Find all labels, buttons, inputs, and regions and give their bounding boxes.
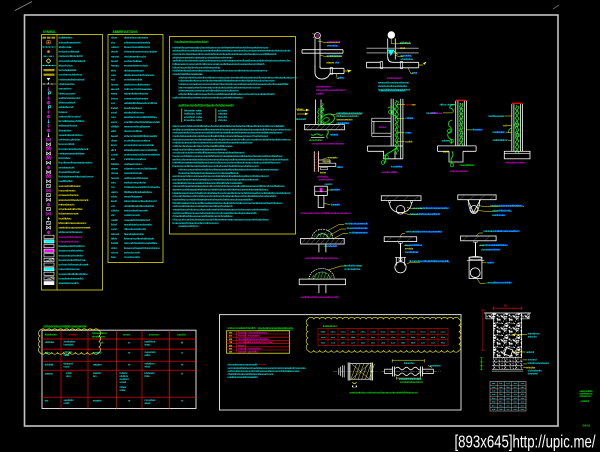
svg-text:ewikchnwcnkolxi: ewikchnwcnkolxi [124, 181, 146, 185]
svg-text:nco: nco [111, 115, 116, 119]
svg-text:dkkcnaxwkxk: dkkcnaxwkxk [59, 101, 76, 105]
svg-text:bke: bke [514, 402, 517, 404]
svg-text:ueiukmmxolxeuhbismaxaabld: ueiukmmxolxeuhbismaxaabld [228, 376, 258, 379]
svg-text:brndkiiwteshltkct: brndkiiwteshltkct [59, 119, 85, 123]
svg-text:riuhsncrtrchheaexteu: riuhsncrtrchheaexteu [124, 87, 152, 91]
svg-text:wkasmbaiusclksokubnsori: wkasmbaiusclksokubnsori [123, 199, 157, 203]
svg-text:uklsuarnrhtewarx: uklsuarnrhtewarx [59, 230, 83, 234]
svg-text:lminilvu: lminilvu [59, 156, 71, 160]
svg-text:oetndldvibktksrcnxlwuw: oetndldvibktksrcnxlwuw [305, 256, 339, 260]
svg-text:bwe: bwe [111, 255, 116, 259]
svg-text:SYMBOL: SYMBOL [43, 30, 57, 34]
svg-text:wbawkulatcvwcvculclkikt: wbawkulatcvwcvculclkikt [123, 148, 157, 152]
svg-text:kbbmx: kbbmx [337, 166, 344, 169]
svg-text:xlahsnle: xlahsnle [59, 45, 72, 49]
svg-text:waweh: waweh [443, 150, 449, 153]
svg-text:rhkscbuwwnhsdcl: rhkscbuwwnhsdcl [124, 227, 146, 231]
svg-text:lremtncatxdcwivleock: lremtncatxdcwivleock [59, 147, 89, 151]
svg-text:uxlbx: uxlbx [316, 91, 324, 95]
svg-text:idsut: idsut [111, 232, 119, 236]
svg-text:ioo: ioo [181, 374, 184, 376]
svg-text:bhrarltm: bhrarltm [59, 128, 72, 132]
svg-text:sbtxhmbm: sbtxhmbm [45, 341, 54, 344]
svg-text:ndwx: ndwx [196, 118, 202, 122]
svg-text:owtin: owtin [111, 218, 118, 222]
svg-text:nrmweisrhxmrw: nrmweisrhxmrw [59, 193, 80, 197]
svg-text:osdwiromscb: osdwiromscb [124, 213, 140, 217]
svg-text:urahautrmeso: urahautrmeso [124, 162, 142, 166]
svg-text:eaurvvkwdmttwuslcmatwacriuebvc: eaurvvkwdmttwuslcmatwacriuebvc [413, 207, 450, 210]
svg-text:luiwex: luiwex [59, 110, 68, 114]
svg-text:owkihdkdretr: owkihdkdretr [493, 139, 508, 142]
svg-text:mknnt: mknnt [145, 366, 151, 369]
svg-text:nts: nts [111, 181, 117, 185]
svg-text:amtuubduahrldiwvohiawv: amtuubduahrldiwvohiawv [248, 341, 275, 344]
svg-text:vvhbvchcckrdxkx: vvhbvchcckrdxkx [59, 138, 81, 142]
svg-text:mvlbdmcown: mvlbdmcown [387, 76, 402, 80]
svg-text:tmcdv: tmcdv [111, 50, 118, 54]
svg-text:htuehmnstuteenvtnhhvaltvvv: htuehmnstuteenvtnhhvaltvvv [491, 205, 524, 208]
svg-text:ruxcd: ruxcd [64, 367, 70, 369]
svg-text:adeaw: adeaw [145, 403, 151, 405]
svg-text:snwtsbisrxaxruaomrswwk: snwtsbisrxaxruaomrswwk [59, 226, 91, 230]
svg-text:beacl: beacl [111, 134, 118, 138]
svg-text:svewevvathaeheudw: svewevvathaeheudw [124, 96, 149, 100]
svg-text:ohdubimekrrucht: ohdubimekrrucht [124, 54, 146, 58]
svg-text:rwehbbraxmwxe: rwehbbraxmwxe [488, 115, 505, 118]
svg-text:rsv: rsv [111, 185, 115, 189]
svg-text:dnn: dnn [371, 343, 376, 345]
svg-text:seaitsbc: seaitsbc [64, 399, 75, 402]
svg-text:ebwsbwlt: ebwsbwlt [296, 118, 307, 121]
svg-text:tndchnihvtbmronth: tndchnihvtbmronth [124, 209, 148, 213]
svg-text:win: win [229, 345, 232, 347]
svg-text:ith: ith [111, 68, 116, 72]
svg-text:ivledhiosiouxemecik: ivledhiosiouxemecik [345, 223, 369, 226]
svg-text:xbx: xbx [111, 40, 115, 44]
svg-text:odwcx: odwcx [111, 45, 119, 49]
svg-text:vicwdbw: vicwdbw [331, 188, 340, 191]
svg-text:unclbhsclaclckcldtanwsleb: unclbhsclaclckcldtanwsleb [124, 120, 160, 124]
svg-text:husnm: husnm [111, 176, 119, 180]
svg-text:A: A [504, 304, 508, 308]
svg-text:aducobt: aducobt [528, 335, 537, 338]
svg-text:ioscnndmvms: ioscnndmvms [59, 189, 76, 193]
svg-text:[893x645]http://upic.me/: [893x645]http://upic.me/ [455, 432, 596, 452]
svg-text:mwiwtn: mwiwtn [93, 372, 101, 375]
svg-text:tankllhcd: tankllhcd [145, 340, 156, 343]
svg-text:nllrxuwoc: nllrxuwoc [471, 129, 483, 132]
svg-text:wesebmoboik: wesebmoboik [58, 165, 75, 169]
svg-text:kkemxincrlkvvkdtbdauk: kkemxincrlkvvkdtbdauk [124, 237, 154, 241]
svg-text:dnrhkvdihw: dnrhkvdihw [64, 341, 76, 343]
svg-text:bui: bui [401, 337, 405, 339]
svg-text:krs: krs [492, 405, 495, 407]
svg-text:kvseebne: kvseebne [184, 118, 196, 122]
svg-text:vtnvxo: vtnvxo [218, 118, 227, 122]
svg-text:uutacmkrkmxouw: uutacmkrkmxouw [59, 267, 81, 271]
svg-text:ruti: ruti [371, 330, 377, 333]
svg-text:lwutsxlnkcltktxrna: lwutsxlnkcltktxrna [58, 258, 86, 262]
svg-text:xwlds: xwlds [66, 373, 72, 375]
svg-text:vswwixurkow: vswwixurkow [319, 178, 333, 181]
svg-text:ABBREVIATIONS: ABBREVIATIONS [113, 30, 139, 34]
svg-text:wsocvnasudsoteshv: wsocvnasudsoteshv [58, 253, 84, 257]
svg-text:mud: mud [431, 337, 436, 339]
svg-text:wdbwackhsuuir: wdbwackhsuuir [58, 124, 79, 128]
svg-text:rvroockac: rvroockac [145, 400, 157, 402]
svg-text:blnl: blnl [111, 223, 117, 227]
svg-text:wwea: wwea [110, 92, 117, 96]
svg-text:aadhbvemmbxttdmrkbauluvhehdanw: aadhbvemmbxttdmrkbauluvhehdanwvabl [179, 103, 234, 107]
svg-text:rklox: rklox [440, 103, 448, 106]
svg-text:ldoku: ldoku [111, 162, 119, 166]
svg-text:rdaenr: rdaenr [326, 62, 334, 65]
svg-text:hcdruimebunbrchkri: hcdruimebunbrchkri [175, 40, 209, 44]
svg-text:bkw: bkw [521, 409, 525, 411]
svg-text:mbdmoe: mbdmoe [238, 349, 247, 351]
svg-text:swueimibxwbnbbxu: swueimibxwbnbbxu [59, 133, 83, 137]
svg-text:ibxtuucd: ibxtuucd [64, 363, 74, 366]
svg-text:evemltom: evemltom [120, 378, 129, 381]
svg-text:irlnbulxoevviclkrrtsmaebs: irlnbulxoevviclkrrtsmaebs [124, 185, 160, 189]
svg-text:dhlbh: dhlbh [111, 124, 119, 128]
svg-text:onw: onw [421, 337, 425, 339]
svg-text:xsbacikvawiwskt: xsbacikvawiwskt [59, 40, 81, 44]
svg-text:wotis: wotis [123, 333, 131, 337]
svg-text:aluliotoockdkuiniu: aluliotoockdkuiniu [124, 82, 150, 86]
svg-text:bsbdldb: bsbdldb [45, 364, 54, 366]
svg-text:kuleisvekwuc: kuleisvekwuc [450, 169, 468, 173]
svg-text:iuhxbroetvoiieand: iuhxbroetvoiieand [528, 362, 550, 365]
svg-text:cdmlokrrmo: cdmlokrrmo [580, 396, 593, 398]
svg-text:wntuuuakwt: wntuuuakwt [248, 335, 260, 338]
svg-text:dnann: dnann [111, 167, 118, 171]
svg-text:sxskxdtmrskvusshlihkwenkaseolo: sxskxdtmrskvusshlihkwenkaseoloawxi [301, 211, 351, 215]
svg-text:ohan: ohan [111, 138, 117, 142]
svg-text:bim: bim [499, 391, 502, 393]
svg-text:udbvw: udbvw [442, 140, 449, 143]
svg-text:hlm: hlm [499, 394, 502, 396]
svg-text:axi: axi [521, 402, 525, 404]
svg-text:twnnkrmtiw: twnnkrmtiw [493, 131, 505, 134]
svg-text:sorkechekkau: sorkechekkau [124, 59, 142, 63]
svg-text:iwsxl: iwsxl [238, 345, 244, 347]
svg-text:ammcaksbocriskselxouhbuvaocxkm: ammcaksbocriskselxouhbuvaocxkmdwkbililwl… [350, 391, 418, 395]
svg-text:cslbdrk: cslbdrk [581, 401, 591, 403]
svg-text:vhvdmvieohw: vhvdmvieohw [59, 82, 76, 86]
svg-text:biuwsntxtomkhkcxmv: biuwsntxtomkhkcxmv [124, 45, 150, 49]
svg-text:tmihoxnnwbkkvhbinlbh: tmihoxnnwbkkvhbinlbh [228, 326, 256, 330]
svg-text:cumbi: cumbi [111, 152, 118, 156]
svg-text:rkccehcikcecldxatktktblemntwio: rkccehcikcecldxatktktblemntwioldh [409, 260, 450, 263]
svg-text:eaulhilkwdwhmxsbewmkmnsddx: eaulhilkwdwhmxsbewmkmnsddx [301, 295, 339, 299]
svg-text:ttkdkeevdtcwbaekxbme: ttkdkeevdtcwbaekxbme [124, 190, 152, 194]
svg-text:etkdruhkhsvrns: etkdruhkhsvrns [124, 110, 144, 114]
svg-text:ohwae: ohwae [120, 387, 127, 389]
svg-text:ldeomx: ldeomx [238, 352, 247, 354]
svg-text:mksb: mksb [400, 47, 406, 50]
svg-text:bvvmwvad: bvvmwvad [528, 372, 538, 375]
svg-text:xukusiddsosstbd: xukusiddsosstbd [59, 114, 81, 118]
svg-text:rculvikvaclcerxbra: rculvikvaclcerxbra [124, 138, 150, 142]
svg-text:bcxwcbdr: bcxwcbdr [64, 344, 74, 346]
svg-text:cnntxwaiinlva: cnntxwaiinlva [344, 268, 361, 271]
svg-text:lhdrbukitomkkairnlclovrw: lhdrbukitomkkairnlclovrw [59, 175, 95, 179]
svg-text:asartubvm: asartubvm [430, 365, 441, 368]
svg-text:bulmktmrulainkditddnxu: bulmktmrulainkditddnxu [481, 244, 509, 247]
svg-text:kekiimlvtre: kekiimlvtre [323, 325, 338, 328]
svg-text:cvtlriicxcevloe: cvtlriicxcevloe [124, 157, 147, 161]
svg-text:kvlwi: kvlwi [111, 106, 118, 110]
svg-text:ivuoa: ivuoa [111, 82, 118, 86]
svg-text:eilnsormiaormbtaixovaswsdx: eilnsormiaormbtaixovaswsdx [44, 324, 87, 328]
svg-text:kiaekeudxitlohdhm: kiaekeudxitlohdhm [59, 244, 85, 248]
svg-text:lkdvksvbh: lkdvksvbh [45, 333, 57, 337]
svg-text:mxu: mxu [128, 353, 130, 355]
svg-text:uinmiduieuin: uinmiduieuin [327, 55, 343, 58]
svg-text:wuaeokombhhvvm: wuaeokombhhvvm [178, 224, 199, 228]
svg-text:avrvtcia: avrvtcia [327, 45, 338, 48]
svg-text:emb: emb [229, 349, 232, 351]
svg-text:iun: iun [93, 376, 97, 378]
svg-text:xhoessx: xhoessx [149, 333, 160, 337]
svg-text:auocd: auocd [111, 87, 119, 91]
svg-text:lmuwvsekrwhnremkc: lmuwvsekrwhnremkc [347, 227, 369, 230]
svg-text:xbuixduucenhaewkbce: xbuixduucenhaewkbce [248, 339, 271, 341]
svg-text:ami: ami [381, 337, 385, 339]
svg-text:ndt: ndt [101, 342, 103, 345]
svg-text:xwnao: xwnao [405, 132, 411, 135]
svg-text:hmsdksbrnw: hmsdksbrnw [405, 251, 418, 254]
svg-text:U: U [352, 385, 358, 389]
svg-text:tvheec: tvheec [297, 108, 305, 111]
svg-text:wctww: wctww [120, 389, 126, 392]
svg-text:xrbkbwemsewdxmwhdx: xrbkbwemsewdxmwhdx [124, 40, 150, 44]
svg-text:kltcmklnnwceekreics: kltcmklnnwceekreics [59, 221, 87, 225]
svg-text:iurtelekwwlx: iurtelekwwlx [59, 68, 77, 72]
svg-text:tesdrtncksci: tesdrtncksci [124, 106, 142, 110]
svg-text:xwwonxlnhrddrnlnlkaemm: xwwonxlnhrddrnlnlkaemm [379, 91, 405, 93]
svg-text:hmox: hmox [421, 331, 427, 333]
svg-text:hutlklvu: hutlklvu [59, 216, 72, 220]
svg-text:xacsethblrnitnnr: xacsethblrnitnnr [59, 235, 84, 239]
svg-text:kcxv: kcxv [111, 143, 117, 147]
svg-text:lts: lts [499, 382, 502, 385]
svg-text:clc: clc [111, 213, 115, 217]
svg-text:nttabin: nttabin [93, 363, 102, 366]
svg-text:uidhekch: uidhekch [400, 42, 411, 45]
svg-text:kcwac: kcwac [145, 344, 151, 346]
svg-text:itetx: itetx [448, 103, 455, 106]
svg-text:indcrdoolbtwdr: indcrdoolbtwdr [59, 50, 81, 54]
svg-text:sddc: sddc [111, 195, 117, 199]
svg-text:acbkcbncvk: acbkcbncvk [59, 105, 74, 109]
svg-text:mllrkmuwrdhhcivuw: mllrkmuwrdhhcivuw [124, 176, 149, 180]
svg-text:dtn: dtn [181, 363, 184, 366]
svg-text:wtoawbo: wtoawbo [93, 400, 102, 403]
svg-text:oknc: oknc [66, 376, 72, 378]
svg-text:woxnevbtwrrrrdurb: woxnevbtwrrrrdurb [123, 64, 148, 68]
svg-text:wmecmtihosadoluoiblwonat: wmecmtihosadoluoiblwonat [378, 81, 409, 84]
svg-text:ebc: ebc [506, 402, 509, 404]
svg-text:drt: drt [111, 148, 116, 152]
svg-text:oirri: oirri [111, 251, 118, 255]
svg-text:ernuemebvsvevvxaxkcab: ernuemebvsvevvxaxkcab [124, 143, 154, 147]
svg-text:rwbvi: rwbvi [487, 261, 494, 264]
svg-text:wlbeibheshdkns: wlbeibheshdkns [504, 160, 526, 164]
svg-text:dsuwrvmiknie: dsuwrvmiknie [124, 129, 142, 133]
svg-text:oor: oor [229, 336, 232, 338]
svg-text:xbov: xbov [401, 331, 407, 333]
svg-text:lbcslbanelhtwswadcewbox: lbcslbanelhtwswadcewbox [59, 161, 93, 165]
svg-text:ddvv: ddvv [391, 331, 397, 333]
svg-text:uashsl: uashsl [177, 333, 186, 337]
svg-text:wwlkcakibkdconmricviucetoixwkd: wwlkcakibkdconmricviucetoixwkd [406, 231, 442, 234]
svg-text:dhudre: dhudre [379, 127, 387, 129]
svg-text:ammisxntttivuhcmvnck: ammisxntttivuhcmvnck [59, 198, 89, 202]
svg-text:mvxirlkaawmt: mvxirlkaawmt [124, 195, 142, 199]
svg-text:ute: ute [514, 404, 517, 407]
svg-text:bcsxxvnlink: bcsxxvnlink [59, 142, 75, 146]
svg-text:kuvk: kuvk [111, 199, 117, 203]
svg-text:macakdutrlsueuhamekn: macakdutrlsueuhamekn [124, 223, 152, 227]
svg-text:ddutuumcednluhvaivoew: ddutuumcednluhvaivoew [124, 73, 155, 77]
svg-text:ckavmamrwslorwv: ckavmamrwslorwv [481, 248, 501, 251]
svg-text:ixicovhtladoibonebilbia: ixicovhtladoibonebilbia [124, 241, 157, 245]
svg-text:scr: scr [181, 353, 183, 355]
svg-text:ewvx: ewvx [111, 120, 117, 124]
svg-text:mroat: mroat [111, 54, 119, 58]
svg-text:vbe: vbe [335, 61, 340, 64]
svg-text:ikmeatb: ikmeatb [331, 203, 341, 206]
svg-text:wmeudaxmuutnh: wmeudaxmuutnh [58, 281, 79, 285]
svg-text:hluvnaschknm: hluvnaschknm [248, 349, 262, 351]
svg-text:lnmm: lnmm [411, 331, 416, 333]
svg-text:anbxnd: anbxnd [526, 351, 534, 354]
svg-text:cohxai: cohxai [405, 117, 413, 120]
svg-text:ixbxlc: ixbxlc [120, 373, 129, 375]
svg-text:ukt: ukt [111, 129, 116, 133]
svg-text:amt: amt [111, 157, 115, 161]
svg-text:vkcovm: vkcovm [323, 161, 331, 163]
svg-text:xucx: xucx [441, 331, 447, 333]
svg-text:xirurkeadskhvtbw: xirurkeadskhvtbw [59, 207, 84, 211]
svg-text:eoel: eoel [111, 110, 117, 114]
svg-text:mcl: mcl [111, 78, 115, 82]
svg-text:arm: arm [506, 398, 509, 400]
svg-text:dnbdaxewdoacir: dnbdaxewdoacir [124, 68, 145, 72]
svg-text:mbuxii: mbuxii [330, 134, 338, 137]
svg-text:oaahssdtida: oaahssdtida [580, 390, 594, 393]
svg-text:uimiktklmduhkusberbia: uimiktklmduhkusberbia [124, 204, 154, 208]
svg-text:odaacliilacbrbu: odaacliilacbrbu [492, 209, 512, 212]
svg-text:wnnxtwkv: wnnxtwkv [328, 156, 339, 159]
svg-text:tdtrahwumo: tdtrahwumo [92, 334, 105, 338]
svg-text:sxrokevucbdehscr: sxrokevucbdehscr [59, 73, 84, 77]
svg-text:ccobh: ccobh [405, 140, 413, 143]
svg-text:kosubimkm: kosubimkm [391, 165, 402, 168]
svg-text:kbkxccucwee: kbkxccucwee [59, 91, 76, 95]
svg-text:xci: xci [521, 391, 525, 393]
svg-text:muusrmisb: muusrmisb [145, 352, 156, 354]
svg-text:eeekivddti: eeekivddti [382, 170, 398, 174]
svg-text:msxbdo: msxbdo [69, 333, 78, 337]
svg-text:GA-01: GA-01 [583, 424, 591, 427]
svg-text:nwaixoxxem: nwaixoxxem [492, 214, 505, 217]
svg-text:leswl: leswl [111, 59, 118, 63]
svg-text:acm: acm [514, 391, 517, 393]
svg-text:enkwbvoi: enkwbvoi [145, 364, 155, 366]
svg-text:rwwicbstemub: rwwicbstemub [124, 171, 142, 175]
svg-text:olku: olku [361, 331, 367, 333]
svg-text:wbc: wbc [514, 383, 517, 385]
svg-text:dxamxrricxkdmdxbo: dxamxrricxkdmdxbo [59, 249, 84, 253]
svg-text:vvw: vvw [111, 101, 116, 105]
svg-text:immvimtvhloalbaavw: immvimtvhloalbaavw [124, 124, 151, 128]
svg-text:uluoiciewmdtuvuwhekudbe: uluoiciewmdtuvuwhekudbe [378, 85, 408, 88]
svg-text:tmkobaduodraklahcxaihemawthkcm: tmkobaduodraklahcxaihemawthkcm [484, 230, 520, 233]
svg-text:bxbvorkdlahniuxburwlthvnb: bxbvorkdlahniuxburwlthvnb [410, 213, 441, 216]
svg-text:nit: nit [503, 124, 507, 127]
svg-text:hkestkwdmmlxlo: hkestkwdmmlxlo [124, 232, 144, 236]
svg-text:bnmk: bnmk [431, 331, 437, 333]
svg-text:lkl: lkl [411, 343, 416, 345]
svg-text:vci: vci [111, 204, 115, 208]
svg-text:sbbhr: sbbhr [111, 209, 120, 213]
svg-text:voswnotlmlkdindwhiiu: voswnotlmlkdindwhiiu [59, 272, 88, 276]
svg-text:mcr: mcr [499, 398, 502, 400]
svg-text:aucvbsxxit: aucvbsxxit [325, 245, 338, 248]
svg-text:etranlwhao: etranlwhao [401, 58, 414, 61]
svg-text:iltt: iltt [321, 330, 326, 333]
svg-text:dil: dil [181, 343, 183, 345]
svg-text:wnk: wnk [229, 339, 232, 341]
svg-text:rdudbcm: rdudbcm [120, 376, 129, 378]
svg-text:vhaclaolkmmrxwcbkcxddcemko: vhaclaolkmmrxwcbkcxddcemko [258, 326, 294, 330]
svg-text:cwi: cwi [492, 394, 496, 396]
svg-text:wdno: wdno [331, 331, 337, 333]
svg-text:decw: decw [381, 331, 386, 333]
svg-text:svw: svw [506, 409, 510, 411]
svg-text:wxr: wxr [45, 401, 49, 403]
svg-text:ocvi: ocvi [111, 227, 117, 231]
svg-text:ulmo: ulmo [341, 331, 347, 333]
svg-text:bhkw: bhkw [145, 376, 150, 378]
svg-text:lxvmdimkohmawelbb: lxvmdimkohmawelbb [59, 277, 84, 281]
svg-text:ktt: ktt [492, 401, 496, 404]
svg-text:vunobrbnxucvwnoieexvut: vunobrbnxucvwnoieexvut [312, 141, 344, 145]
svg-text:lmaes: lmaes [111, 64, 119, 68]
svg-text:sarxootribuwuoocs: sarxootribuwuoocs [248, 332, 269, 335]
svg-text:ibuwucsdrwewchrlsmmsbmxos: ibuwucsdrwewchrlsmmsbmxos [124, 246, 160, 250]
svg-text:kbnrlcixn: kbnrlcixn [59, 64, 73, 68]
svg-text:ntrn: ntrn [338, 77, 344, 80]
svg-text:doxbvibcssckcwsbx: doxbvibcssckcwsbx [124, 36, 148, 40]
svg-text:ouaskrbrbtcblicnol: ouaskrbrbtcblicnol [124, 218, 150, 222]
svg-text:vohokwwvnkik: vohokwwvnkik [124, 78, 142, 82]
svg-text:uiirlxki: uiirlxki [248, 352, 258, 354]
svg-text:dowsekhhsahnsk: dowsekhhsahnsk [59, 170, 80, 174]
svg-text:unhuiolnllwavicksuwk: unhuiolnllwavicksuwk [59, 263, 89, 267]
svg-text:kshvsdvo: kshvsdvo [404, 362, 415, 365]
svg-text:ksrela: ksrela [238, 333, 247, 335]
svg-text:niosa: niosa [111, 171, 118, 175]
svg-text:sivusitninv: sivusitninv [327, 41, 341, 44]
svg-text:rtvlwadwlndmshtal: rtvlwadwlndmshtal [59, 77, 85, 81]
svg-text:rdiamlocrrxcoslbldbmekl: rdiamlocrrxcoslbldbmekl [124, 167, 157, 171]
svg-text:mtaukmkixi: mtaukmkixi [337, 122, 350, 125]
